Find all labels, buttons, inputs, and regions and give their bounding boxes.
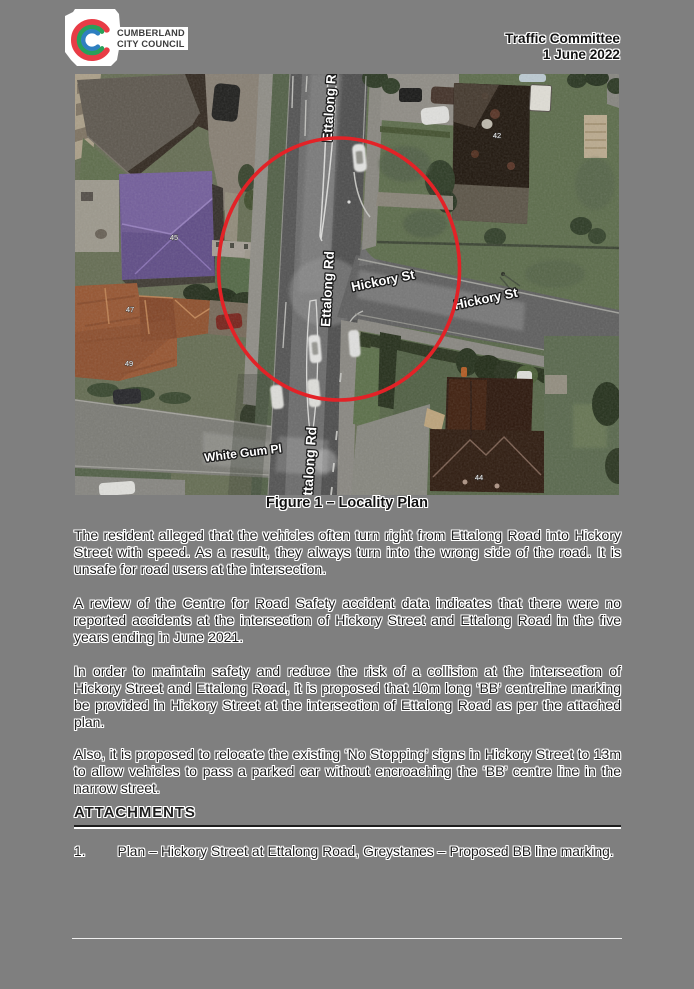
svg-text:47: 47 (126, 305, 134, 314)
svg-text:49: 49 (125, 359, 133, 368)
svg-text:45: 45 (170, 233, 178, 242)
svg-text:42: 42 (493, 131, 501, 140)
svg-text:44: 44 (475, 473, 483, 482)
